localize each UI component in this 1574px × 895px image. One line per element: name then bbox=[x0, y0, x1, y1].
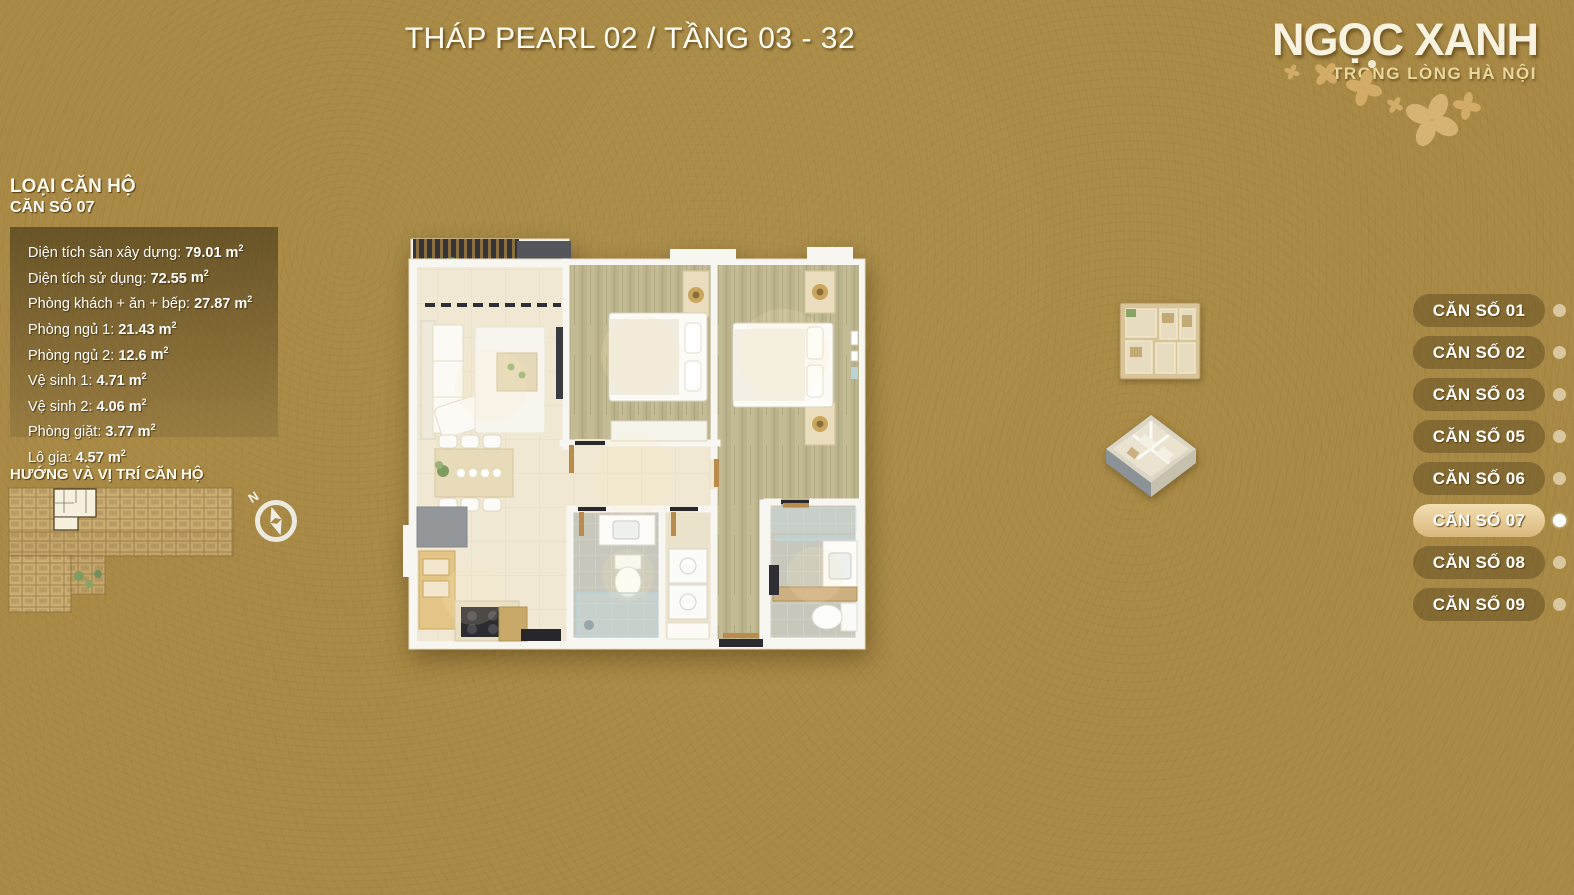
unit-selector-row: CĂN SỐ 05 bbox=[1413, 420, 1566, 453]
unit-select-button[interactable]: CĂN SỐ 03 bbox=[1413, 378, 1545, 411]
building-floor-plate-minimap bbox=[8, 486, 238, 616]
unit-selector: CĂN SỐ 01CĂN SỐ 02CĂN SỐ 03CĂN SỐ 05CĂN … bbox=[1413, 294, 1566, 621]
thumbnail-3d-floor-plan[interactable] bbox=[1102, 409, 1200, 513]
unit-selector-row: CĂN SỐ 01 bbox=[1413, 294, 1566, 327]
spec-label: Diện tích sử dụng: bbox=[28, 270, 151, 286]
spec-unit: m2 bbox=[222, 245, 244, 261]
spec-label: Lô gia: bbox=[28, 450, 76, 466]
spec-unit: m2 bbox=[147, 347, 169, 363]
location-heading: HƯỚNG VÀ VỊ TRÍ CĂN HỘ bbox=[10, 466, 204, 483]
unit-indicator-dot bbox=[1553, 472, 1566, 485]
spec-label: Vệ sinh 1: bbox=[28, 373, 97, 389]
spec-value: 4.71 bbox=[97, 373, 125, 389]
spec-unit: m2 bbox=[125, 373, 147, 389]
spec-row: Phòng giặt: 3.77 m2 bbox=[28, 417, 268, 443]
unit-specs: Diện tích sàn xây dựng: 79.01 m2Diện tíc… bbox=[10, 227, 278, 437]
spec-value: 12.6 bbox=[118, 347, 146, 363]
unit-select-button[interactable]: CĂN SỐ 08 bbox=[1413, 546, 1545, 579]
page-title: THÁP PEARL 02 / TẦNG 03 - 32 bbox=[395, 22, 865, 56]
unit-select-button[interactable]: CĂN SỐ 06 bbox=[1413, 462, 1545, 495]
unit-select-button[interactable]: CĂN SỐ 09 bbox=[1413, 588, 1545, 621]
unit-selector-row: CĂN SỐ 09 bbox=[1413, 588, 1566, 621]
unit-selector-row: CĂN SỐ 07 bbox=[1413, 504, 1566, 537]
spec-label: Vệ sinh 2: bbox=[28, 399, 97, 415]
compass-north-label: N bbox=[245, 488, 261, 506]
spec-label: Phòng khách + ăn + bếp: bbox=[28, 296, 194, 312]
unit-indicator-dot bbox=[1553, 514, 1566, 527]
spec-value: 27.87 bbox=[194, 296, 230, 312]
spec-value: 72.55 bbox=[151, 270, 187, 286]
spec-row: Phòng ngủ 1: 21.43 m2 bbox=[28, 315, 268, 341]
unit-type-heading: LOẠI CĂN HỘ bbox=[10, 176, 136, 198]
thumbnail-2d-floor-plan[interactable] bbox=[1118, 301, 1202, 381]
unit-select-button[interactable]: CĂN SỐ 05 bbox=[1413, 420, 1545, 453]
spec-label: Phòng giặt: bbox=[28, 424, 105, 440]
unit-indicator-dot bbox=[1553, 556, 1566, 569]
spec-unit: m2 bbox=[104, 450, 126, 466]
spec-value: 79.01 bbox=[185, 245, 221, 261]
spec-row: Diện tích sử dụng: 72.55 m2 bbox=[28, 264, 268, 290]
spec-row: Phòng khách + ăn + bếp: 27.87 m2 bbox=[28, 289, 268, 315]
spec-unit: m2 bbox=[187, 270, 209, 286]
unit-select-button[interactable]: CĂN SỐ 02 bbox=[1413, 336, 1545, 369]
spec-value: 4.57 bbox=[76, 450, 104, 466]
spec-row: Vệ sinh 2: 4.06 m2 bbox=[28, 392, 268, 418]
spec-value: 4.06 bbox=[97, 399, 125, 415]
spec-row: Lô gia: 4.57 m2 bbox=[28, 443, 268, 469]
spec-value: 21.43 bbox=[118, 322, 154, 338]
unit-selector-row: CĂN SỐ 08 bbox=[1413, 546, 1566, 579]
unit-selector-row: CĂN SỐ 03 bbox=[1413, 378, 1566, 411]
compass-rose-icon: N bbox=[243, 485, 307, 547]
spec-label: Phòng ngủ 2: bbox=[28, 347, 118, 363]
unit-number-heading: CĂN SỐ 07 bbox=[10, 199, 94, 217]
page-background: { "title": "THÁP PEARL 02 / TẦNG 03 - 32… bbox=[0, 0, 1574, 895]
spec-unit: m2 bbox=[125, 399, 147, 415]
spec-row: Phòng ngủ 2: 12.6 m2 bbox=[28, 341, 268, 367]
unit-indicator-dot bbox=[1553, 430, 1566, 443]
spec-unit: m2 bbox=[230, 296, 252, 312]
floor-plan-render bbox=[403, 235, 873, 657]
unit-select-button[interactable]: CĂN SỐ 01 bbox=[1413, 294, 1545, 327]
spec-row: Diện tích sàn xây dựng: 79.01 m2 bbox=[28, 238, 268, 264]
unit-indicator-dot bbox=[1553, 598, 1566, 611]
spec-unit: m2 bbox=[155, 322, 177, 338]
flower-petals-icon bbox=[1262, 50, 1502, 150]
spec-label: Diện tích sàn xây dựng: bbox=[28, 245, 185, 261]
spec-label: Phòng ngủ 1: bbox=[28, 322, 118, 338]
unit-indicator-dot bbox=[1553, 304, 1566, 317]
unit-selector-row: CĂN SỐ 02 bbox=[1413, 336, 1566, 369]
spec-unit: m2 bbox=[134, 424, 156, 440]
unit-select-button[interactable]: CĂN SỐ 07 bbox=[1413, 504, 1545, 537]
spec-row: Vệ sinh 1: 4.71 m2 bbox=[28, 366, 268, 392]
unit-indicator-dot bbox=[1553, 388, 1566, 401]
unit-selector-row: CĂN SỐ 06 bbox=[1413, 462, 1566, 495]
unit-indicator-dot bbox=[1553, 346, 1566, 359]
spec-value: 3.77 bbox=[105, 424, 133, 440]
